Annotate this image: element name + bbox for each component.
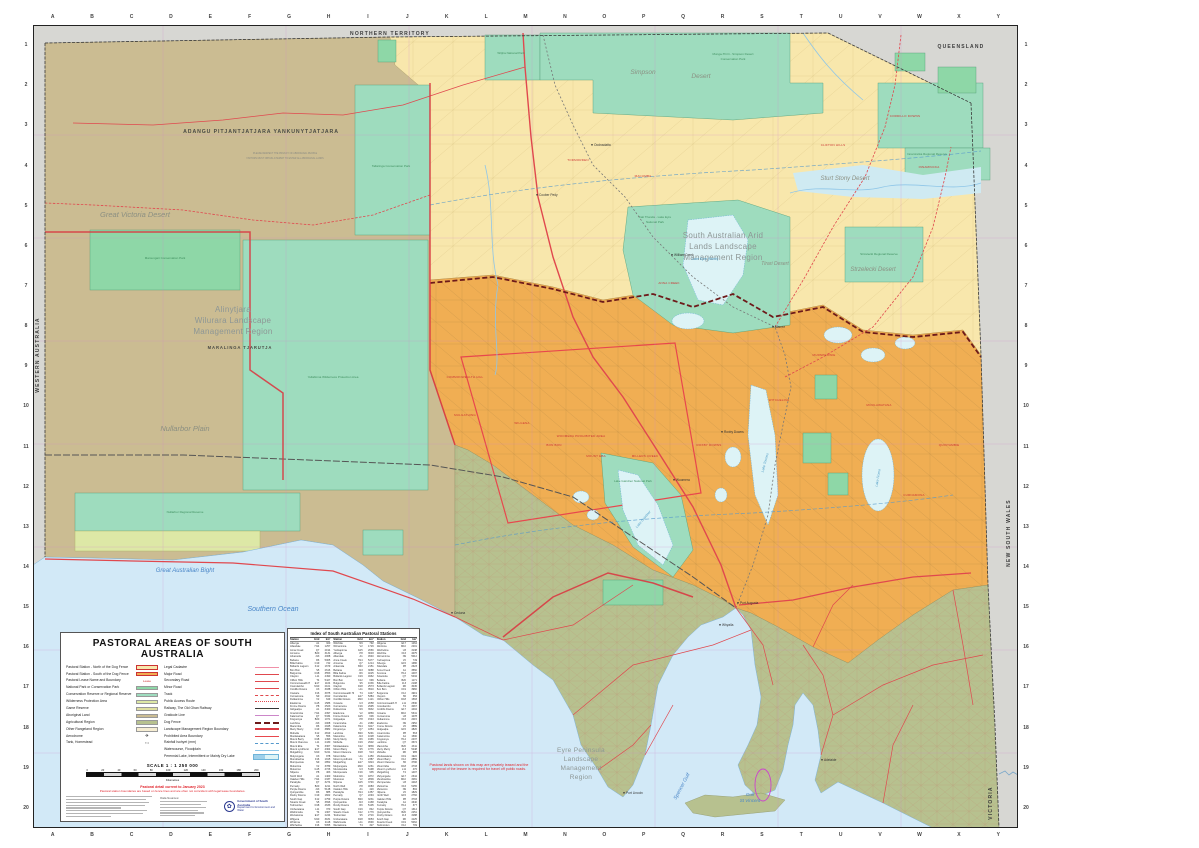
legend-item-swatch: ✈ (136, 734, 158, 738)
credits-text-placeholder (66, 796, 155, 818)
data-source-line (160, 801, 207, 802)
grid-number-right: 2 (1019, 82, 1033, 88)
map-label: Gulf (746, 792, 755, 797)
grid-letter-bottom: G (282, 832, 296, 838)
legend-item-label: Landscape Management Region Boundary (164, 728, 253, 732)
scale-tick: 120 (184, 769, 188, 772)
map-label: Strzelecki Desert (850, 267, 896, 273)
grid-letter-bottom: X (952, 832, 966, 838)
town-dot (772, 326, 774, 328)
legend-item-swatch (136, 665, 158, 669)
map-label: Region (570, 774, 592, 781)
legend-item: Conservation Reserve or Regional Reserve (66, 692, 158, 699)
town-label: Roxby Downs (724, 430, 744, 434)
legend-item: Dog Fence (164, 719, 279, 726)
legend-item: Secondary Road (164, 678, 279, 685)
legend-item: Minor Road (164, 685, 279, 692)
grid-letter-bottom: N (558, 832, 572, 838)
map-label: Great Victoria Desert (100, 210, 171, 219)
legend-item: Major Road (164, 671, 279, 678)
grid-letter-top: F (243, 14, 257, 20)
legend-item-swatch (255, 695, 279, 696)
map-label: Wilurara Landscape (195, 316, 272, 325)
map-label: Strzelecki Regional Reserve (860, 252, 898, 256)
station-label: MACUMBA (635, 174, 652, 178)
grid-letter-top: R (716, 14, 730, 20)
map-label: NORTHERN TERRITORY (350, 31, 430, 37)
legend-item-label: Minor Road (164, 686, 253, 690)
legend-item: Pastoral Station - North of the Dog Fenc… (66, 664, 158, 671)
grid-letter-top: X (952, 14, 966, 20)
grid-letter-bottom: Y (991, 832, 1005, 838)
map-label: Kati Thanda - Lake Eyre (639, 215, 672, 219)
legend-item-label: National Park or Conservation Park (66, 686, 134, 690)
legend-item: Tank, Homestead▪ • (66, 740, 158, 747)
grid-number-right: 20 (1019, 805, 1033, 811)
station-label: COMMONWEALTH HILL (447, 375, 484, 379)
legend-item-label: Rainfall Isohyet (mm) (164, 741, 253, 745)
map-label: St Vincent (740, 798, 761, 803)
town-label: Woomera (676, 478, 690, 482)
map-label: Innamincka Regional Reserve (907, 152, 947, 156)
legend-item-swatch (255, 708, 279, 709)
lease-access-note: Pastoral lands shown on this map are pri… (429, 763, 529, 772)
grid-number-left: 7 (19, 283, 33, 289)
legend-columns: Pastoral Station - North of the Dog Fenc… (66, 664, 279, 760)
legend-box: PASTORAL AREAS OF SOUTH AUSTRALIA Pastor… (60, 632, 285, 822)
grid-number-left: 2 (19, 82, 33, 88)
station-label: MURNPEOWIE (813, 353, 836, 357)
town-dot (737, 602, 739, 604)
legend-item-label: Major Road (164, 673, 253, 677)
legend-item: Other Rangeland Region (66, 726, 158, 733)
legend-item-swatch: ▪ • (136, 741, 158, 745)
map-label: Lands Landscape (689, 242, 757, 251)
legend-item-label: Legal Cadastre (164, 666, 253, 670)
map-label: Munga-Thirri - Simpson Desert (712, 52, 753, 56)
legend-item-swatch (136, 672, 158, 676)
legend-item-label: Pastoral Lease Name and Boundary (66, 679, 134, 683)
legend-item-swatch (136, 700, 158, 704)
data-sources-label: Data Sources: (160, 796, 218, 800)
legend-item-label: Wilderness Protection Area (66, 700, 134, 704)
town-label: Port Augusta (740, 601, 758, 605)
legend-item-swatch (255, 681, 279, 682)
town-dot (536, 194, 538, 196)
legend-item-swatch (255, 674, 279, 675)
town-label: Coober Pedy (539, 193, 558, 197)
station-label: MILLERS CREEK (632, 454, 659, 458)
map-label: Simpson (630, 69, 656, 76)
map-label: Great Australian Bight (156, 568, 215, 574)
grid-number-left: 9 (19, 363, 33, 369)
legend-item: Aboriginal Land (66, 712, 158, 719)
grid-number-left: 11 (19, 444, 33, 450)
legend-item-label: Perennial Lake, Intermittent or Mainly D… (164, 755, 251, 759)
grid-letter-bottom: S (755, 832, 769, 838)
town-label: Marree (775, 325, 785, 329)
sa-gov-logo-icon: ✿ (224, 801, 235, 812)
grid-letter-bottom: Q (676, 832, 690, 838)
grid-letter-top: D (164, 14, 178, 20)
index-row: WitchelinaF165055 (290, 824, 330, 827)
map-label: National Park (646, 220, 665, 224)
grid-letter-bottom: U (834, 832, 848, 838)
legend-item-swatch (255, 701, 279, 702)
legend-item: Rainfall Isohyet (mm) (164, 740, 279, 747)
legend-item-swatch (255, 728, 279, 730)
grid-letter-top: S (755, 14, 769, 20)
grid-number-right: 16 (1019, 644, 1033, 650)
legend-item: Public Access Route (164, 698, 279, 705)
boundary-note: Pastoral station boundaries are based on… (66, 789, 279, 793)
legend-item-swatch (136, 714, 158, 718)
legend-item: Agricultural Region (66, 719, 158, 726)
grid-letter-bottom: A (46, 832, 60, 838)
station-label: MOOLAWATANA (866, 403, 891, 407)
legend-item-label: Other Rangeland Region (66, 728, 134, 732)
grid-number-left: 12 (19, 484, 33, 490)
legend-item-label: Dog Fence (164, 721, 253, 725)
map-label: Alinytjara (215, 305, 251, 314)
town-label: Oodnadatta (594, 143, 611, 147)
grid-number-right: 11 (1019, 444, 1033, 450)
scale-tick: 40 (117, 769, 120, 772)
map-label: NEW SOUTH WALES (1006, 499, 1012, 567)
sa-gov-logo: ✿ Government of South Australia Departme… (224, 800, 279, 813)
legend-item: Game Reserve (66, 705, 158, 712)
credits-line (66, 805, 145, 806)
station-label: INNAMINCKA (919, 165, 940, 169)
grid-number-left: 3 (19, 122, 33, 128)
legend-item: Pastoral Station - South of the Dog Fenc… (66, 671, 158, 678)
legend-right-column: Legal CadastreMajor RoadSecondary RoadMi… (164, 664, 279, 760)
legend-item-label: Railway, The Old Ghan Railway (164, 707, 253, 711)
credits-line (66, 799, 146, 800)
grid-number-right: 9 (1019, 363, 1033, 369)
data-source-line (160, 810, 198, 811)
town-dot (623, 792, 625, 794)
legend-item: Wilderness Protection Area (66, 698, 158, 705)
scale-block: SCALE 1 : 1 250 000 02040608010012014016… (66, 763, 279, 782)
legend-item: Aerodrome✈ (66, 733, 158, 740)
grid-letter-bottom: E (203, 832, 217, 838)
grid-letter-top: U (834, 14, 848, 20)
map-label: PLEASE RESPECT THE PRIVACY OF ABORIGINAL… (253, 152, 318, 155)
map-label: VICTORIA (988, 786, 994, 819)
map-label: Mamungari Conservation Park (145, 256, 186, 260)
legend-item: Graticule Line (164, 712, 279, 719)
grid-number-left: 1 (19, 42, 33, 48)
grid-number-left: 16 (19, 644, 33, 650)
credits-line (66, 807, 121, 808)
grid-number-right: 14 (1019, 564, 1033, 570)
map-label: Eyre Peninsula (557, 747, 605, 754)
credits-line (66, 813, 143, 814)
station-label: WILGENA (514, 421, 529, 425)
town-label: Whyalla (722, 623, 734, 627)
station-label: QUINYAMBIE (939, 443, 960, 447)
map-label: WOOMERA PROHIBITED AREA (557, 434, 606, 438)
grid-letter-top: Y (991, 14, 1005, 20)
map-label: Yellabinna Wilderness Protection Area (308, 375, 359, 379)
map-label: Southern Ocean (248, 606, 299, 613)
grid-letter-bottom: R (716, 832, 730, 838)
legend-item: Prohibited Area Boundary (164, 733, 279, 740)
legend-item-label: Track (164, 693, 253, 697)
legend-item-label: Watercourse, Floodplain (164, 748, 253, 752)
grid-number-right: 18 (1019, 725, 1033, 731)
legend-item: Perennial Lake, Intermittent or Mainly D… (164, 754, 279, 761)
grid-letter-top: N (558, 14, 572, 20)
scale-tick: 20 (101, 769, 104, 772)
data-source-line (160, 815, 195, 816)
legend-item-label: Conservation Reserve or Regional Reserve (66, 693, 134, 697)
map-label: Management Region (193, 327, 272, 336)
town-dot (721, 431, 723, 433)
grid-letter-top: Q (676, 14, 690, 20)
map-label: Lake Gairdner National Park (614, 479, 652, 483)
index-title: Index of South Australian Pastoral Stati… (290, 631, 417, 638)
map-label: Nullarbor Plain (160, 424, 209, 433)
grid-letter-top: M (519, 14, 533, 20)
legend-item-label: Secondary Road (164, 679, 253, 683)
grid-number-left: 19 (19, 765, 33, 771)
town-label: Ceduna (454, 611, 465, 615)
grid-number-left: 5 (19, 203, 33, 209)
station-label: CLIFTON HILLS (821, 143, 846, 147)
station-label: CORDILLO DOWNS (890, 114, 920, 118)
data-sources-block: Data Sources: (160, 796, 218, 818)
legend-item-label: Agricultural Region (66, 721, 134, 725)
grid-letter-top: A (46, 14, 60, 20)
index-row: TodmordenK12799 (377, 824, 417, 827)
grid-number-left: 15 (19, 604, 33, 610)
map-label: Sturt Stony Desert (820, 176, 869, 182)
grid-letter-top: I (361, 14, 375, 20)
scale-tick: 100 (166, 769, 170, 772)
grid-letter-top: O (597, 14, 611, 20)
station-label: MOUNT EBA (586, 454, 606, 458)
index-column: StationGridkm²WitchitieN9792WirraminnaV2… (333, 638, 373, 828)
grid-letter-top: K (440, 14, 454, 20)
legend-item-swatch (255, 688, 279, 689)
grid-letter-bottom: B (85, 832, 99, 838)
legend-item-label: Aerodrome (66, 735, 134, 739)
grid-number-left: 17 (19, 684, 33, 690)
legend-item-swatch: Lease (136, 679, 158, 683)
grid-letter-top: P (637, 14, 651, 20)
scale-unit: Kilometres (66, 778, 279, 782)
town-dot (719, 624, 721, 626)
grid-letter-bottom: K (440, 832, 454, 838)
grid-number-right: 1 (1019, 42, 1033, 48)
station-label: ANNA CREEK (658, 281, 679, 285)
credits-block: Data Sources: ✿ Government of South Aust… (66, 796, 279, 818)
map-label: Management (561, 765, 602, 772)
index-column: StationGridkm²WilgenaE171264WintinnaM102… (377, 638, 417, 828)
station-label: WITCHELINA (769, 398, 790, 402)
grid-number-left: 10 (19, 403, 33, 409)
legend-item-label: Graticule Line (164, 714, 253, 718)
scale-tick: 0 (87, 769, 88, 772)
map-label: MARALINGA TJARUTJA (208, 345, 273, 350)
grid-letter-bottom: D (164, 832, 178, 838)
grid-letter-top: V (873, 14, 887, 20)
scale-bar (86, 772, 260, 777)
map-label: Lake Eyre (North) (692, 257, 719, 261)
index-column: StationGridkm²AlbergaA1320AllandaleH1412… (290, 638, 330, 828)
grid-number-right: 17 (1019, 684, 1033, 690)
grid-letter-top: W (913, 14, 927, 20)
grid-letter-top: G (282, 14, 296, 20)
legend-item-label: Prohibited Area Boundary (164, 735, 253, 739)
scale-tick: 200 (254, 769, 258, 772)
map-label: Tirari Desert (761, 261, 789, 267)
legend-item-swatch (253, 754, 279, 760)
grid-number-left: 20 (19, 805, 33, 811)
station-label: BON BON (546, 443, 561, 447)
grid-number-right: 13 (1019, 524, 1033, 530)
grid-letter-bottom: P (637, 832, 651, 838)
map-label: Tallaringa Conservation Park (372, 164, 411, 168)
grid-letter-top: T (794, 14, 808, 20)
grid-letter-bottom: F (243, 832, 257, 838)
grid-letter-top: E (203, 14, 217, 20)
data-source-line (160, 807, 206, 808)
town-label: Port Lincoln (626, 791, 643, 795)
legend-item-swatch (255, 715, 279, 716)
legend-item: Legal Cadastre (164, 664, 279, 671)
legend-item-swatch (136, 693, 158, 697)
map-label: WESTERN AUSTRALIA (35, 317, 41, 393)
map-label: AŊANGU PITJANTJATJARA YANKUNYTJATJARA (183, 129, 339, 135)
grid-number-right: 19 (1019, 765, 1033, 771)
grid-number-left: 6 (19, 243, 33, 249)
town-dot (671, 254, 673, 256)
legend-item-swatch (136, 727, 158, 731)
legend-title: PASTORAL AREAS OF SOUTH AUSTRALIA (66, 638, 279, 660)
legend-item-label: Pastoral Station - South of the Dog Fenc… (66, 673, 134, 677)
town-dot (591, 144, 593, 146)
map-frame: OodnadattaCoober PedyMarreeWilliam Creek… (33, 25, 1018, 828)
legend-item: Pastoral Lease Name and BoundaryLease (66, 678, 158, 685)
legend-item-swatch (136, 707, 158, 711)
grid-letter-bottom: W (913, 832, 927, 838)
scale-tick: 180 (237, 769, 241, 772)
legend-item-swatch (255, 722, 279, 724)
grid-number-right: 4 (1019, 163, 1033, 169)
station-label: ROXBY DOWNS (697, 443, 722, 447)
legend-item-label: Aboriginal Land (66, 714, 134, 718)
legend-item-swatch (255, 743, 279, 744)
legend-item: Track (164, 692, 279, 699)
grid-letter-top: H (322, 14, 336, 20)
grid-letter-bottom: H (322, 832, 336, 838)
grid-letter-bottom: M (519, 832, 533, 838)
grid-number-left: 13 (19, 524, 33, 530)
credits-line (66, 816, 111, 817)
legend-item-label: Public Access Route (164, 700, 253, 704)
grid-number-left: 8 (19, 323, 33, 329)
town-dot (821, 759, 823, 761)
grid-number-right: 7 (1019, 283, 1033, 289)
legend-item: National Park or Conservation Park (66, 685, 158, 692)
legend-item: Landscape Management Region Boundary (164, 726, 279, 733)
map-label: Conservation Park (721, 57, 746, 61)
map-label: Nullarbor Regional Reserve (167, 510, 204, 514)
station-index-table: Index of South Australian Pastoral Stati… (287, 628, 420, 828)
legend-item-swatch (136, 686, 158, 690)
credits-line (66, 796, 152, 797)
grid-number-right: 12 (1019, 484, 1033, 490)
scale-tick: 140 (201, 769, 205, 772)
legend-item-swatch (255, 736, 279, 737)
grid-letter-bottom: I (361, 832, 375, 838)
grid-letter-bottom: T (794, 832, 808, 838)
credits-line (66, 802, 149, 803)
credits-line (66, 810, 147, 811)
station-label: CURNAMONA (903, 493, 924, 497)
index-row: WertaloonaT4327 (333, 824, 373, 827)
legend-left-column: Pastoral Station - North of the Dog Fenc… (66, 664, 158, 760)
grid-number-left: 18 (19, 725, 33, 731)
grid-letter-bottom: J (400, 832, 414, 838)
grid-letter-bottom: V (873, 832, 887, 838)
map-label: QUEENSLAND (937, 44, 984, 50)
map-label: Desert (691, 73, 711, 80)
map-sheet: AABBCCDDEEFFGGHHIIJJKKLLMMNNOOPPQQRRSSTT… (0, 0, 1199, 848)
town-dot (451, 612, 453, 614)
legend-item-swatch (255, 750, 279, 751)
legend-item-label: Pastoral Station - North of the Dog Fenc… (66, 666, 134, 670)
grid-number-right: 5 (1019, 203, 1033, 209)
map-label: Witjira National Park (497, 51, 525, 55)
index-columns: StationGridkm²AlbergaA1320AllandaleH1412… (290, 638, 417, 828)
grid-number-right: 8 (1019, 323, 1033, 329)
scale-tick: 160 (219, 769, 223, 772)
grid-letter-top: J (400, 14, 414, 20)
station-label: MULGATHING (454, 413, 476, 417)
map-label: South Australian Arid (683, 231, 764, 240)
grid-letter-top: C (125, 14, 139, 20)
grid-letter-bottom: C (125, 832, 139, 838)
grid-letter-bottom: O (597, 832, 611, 838)
map-label: Landscape (564, 756, 599, 763)
legend-item-label: Game Reserve (66, 707, 134, 711)
legend-item: Railway, The Old Ghan Railway (164, 705, 279, 712)
legend-item-label: Tank, Homestead (66, 741, 134, 745)
legend-item: Watercourse, Floodplain (164, 747, 279, 754)
grid-number-left: 4 (19, 163, 33, 169)
grid-number-right: 3 (1019, 122, 1033, 128)
grid-number-right: 15 (1019, 604, 1033, 610)
town-label: Adelaide (824, 758, 837, 762)
scale-tick: 80 (150, 769, 153, 772)
grid-letter-bottom: L (479, 832, 493, 838)
grid-number-right: 6 (1019, 243, 1033, 249)
data-source-line (160, 804, 201, 805)
scale-tick: 60 (134, 769, 137, 772)
grid-letter-top: L (479, 14, 493, 20)
legend-item-swatch (255, 667, 279, 668)
grid-letter-top: B (85, 14, 99, 20)
grid-number-left: 14 (19, 564, 33, 570)
legend-item-swatch (136, 720, 158, 724)
legend-notes: Pastoral detail current to January 2023 … (66, 785, 279, 793)
data-source-line (160, 812, 203, 813)
grid-number-right: 10 (1019, 403, 1033, 409)
